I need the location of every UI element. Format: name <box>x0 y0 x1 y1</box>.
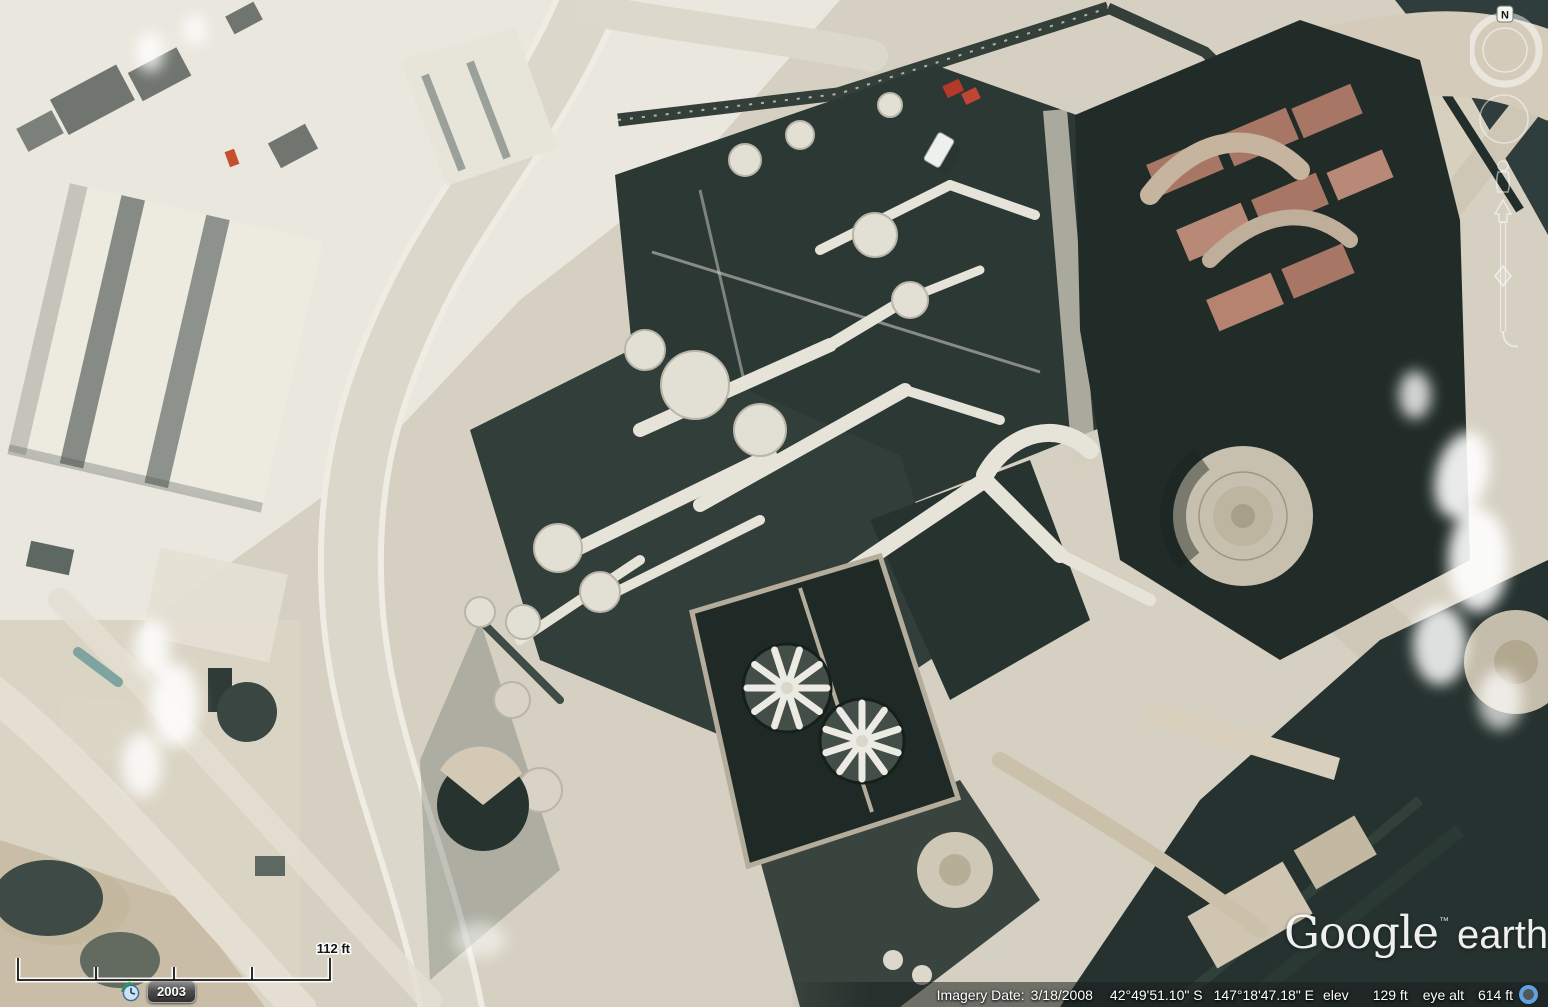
google-earth-logo: Google ™ earth <box>1284 906 1548 959</box>
zoom-slider-handle[interactable] <box>1495 266 1511 286</box>
north-label: N <box>1501 10 1509 22</box>
eye-altitude-value: 614 ft <box>1478 987 1513 1003</box>
navigation-controls[interactable]: N <box>1470 0 1548 360</box>
logo-google: Google <box>1284 906 1438 959</box>
logo-earth: earth <box>1457 913 1548 958</box>
satellite-imagery <box>0 0 1548 1007</box>
pan-up-arrow-icon[interactable] <box>1495 200 1511 222</box>
scale-label: 112 ft <box>317 941 351 956</box>
scale-bar: 112 ft <box>6 936 358 986</box>
streaming-progress-icon <box>1519 985 1538 1004</box>
map-view[interactable]: N 112 ft 2003 <box>0 0 1548 1007</box>
latitude-value: 42°49'51.10" S <box>1110 987 1203 1003</box>
move-ring[interactable] <box>1480 95 1528 143</box>
north-badge[interactable]: N <box>1497 6 1513 22</box>
pegman-icon[interactable] <box>1497 161 1510 192</box>
look-ring[interactable] <box>1471 16 1539 84</box>
elevation-label: elev <box>1323 987 1349 1003</box>
longitude-value: 147°18'47.18" E <box>1214 987 1314 1003</box>
elevation-value: 129 ft <box>1373 987 1408 1003</box>
eye-altitude-label: eye alt <box>1423 987 1464 1003</box>
zoom-slider[interactable] <box>1495 222 1518 346</box>
logo-trademark: ™ <box>1439 916 1449 927</box>
imagery-date-label: Imagery Date: <box>937 987 1025 1003</box>
status-bar: Imagery Date: 3/18/2008 42°49'51.10" S 1… <box>0 982 1548 1007</box>
imagery-date-value: 3/18/2008 <box>1031 987 1093 1003</box>
